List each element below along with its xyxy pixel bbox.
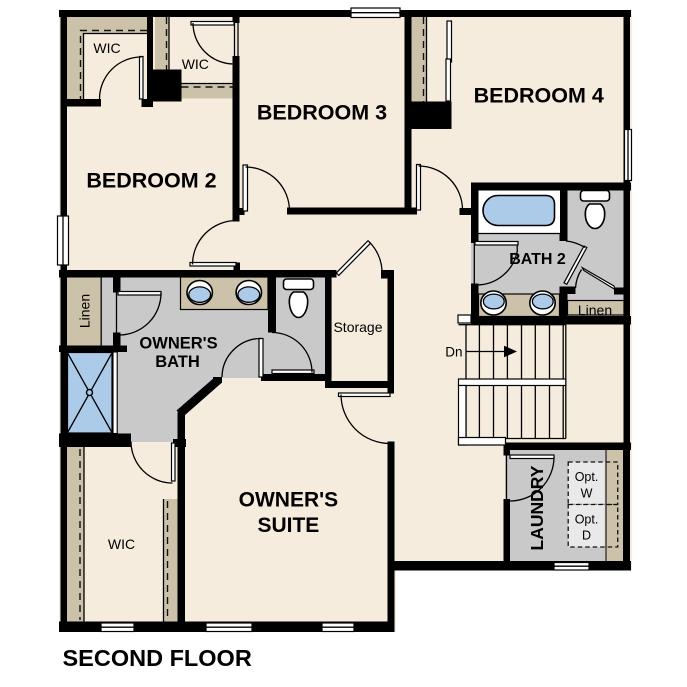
- svg-text:BEDROOM 4: BEDROOM 4: [474, 84, 604, 108]
- svg-text:SUITE: SUITE: [257, 514, 319, 537]
- svg-text:W: W: [581, 487, 593, 501]
- svg-text:WIC: WIC: [108, 536, 135, 552]
- svg-text:Opt.: Opt.: [575, 513, 599, 527]
- svg-text:Storage: Storage: [333, 319, 382, 335]
- svg-text:Dn: Dn: [445, 345, 462, 360]
- svg-text:OWNER'S: OWNER'S: [139, 335, 217, 353]
- svg-text:WIC: WIC: [93, 40, 120, 56]
- svg-text:Linen: Linen: [578, 302, 612, 318]
- svg-text:Opt.: Opt.: [575, 470, 599, 484]
- svg-text:Linen: Linen: [77, 294, 93, 328]
- svg-text:SECOND FLOOR: SECOND FLOOR: [63, 645, 252, 671]
- svg-text:WIC: WIC: [182, 56, 209, 72]
- svg-text:D: D: [582, 529, 591, 543]
- svg-text:BEDROOM 3: BEDROOM 3: [257, 101, 387, 125]
- svg-text:BATH 2: BATH 2: [509, 251, 566, 268]
- svg-text:BATH: BATH: [155, 353, 200, 371]
- svg-text:BEDROOM 2: BEDROOM 2: [86, 169, 216, 193]
- svg-text:LAUNDRY: LAUNDRY: [527, 465, 547, 550]
- svg-text:OWNER'S: OWNER'S: [239, 489, 339, 512]
